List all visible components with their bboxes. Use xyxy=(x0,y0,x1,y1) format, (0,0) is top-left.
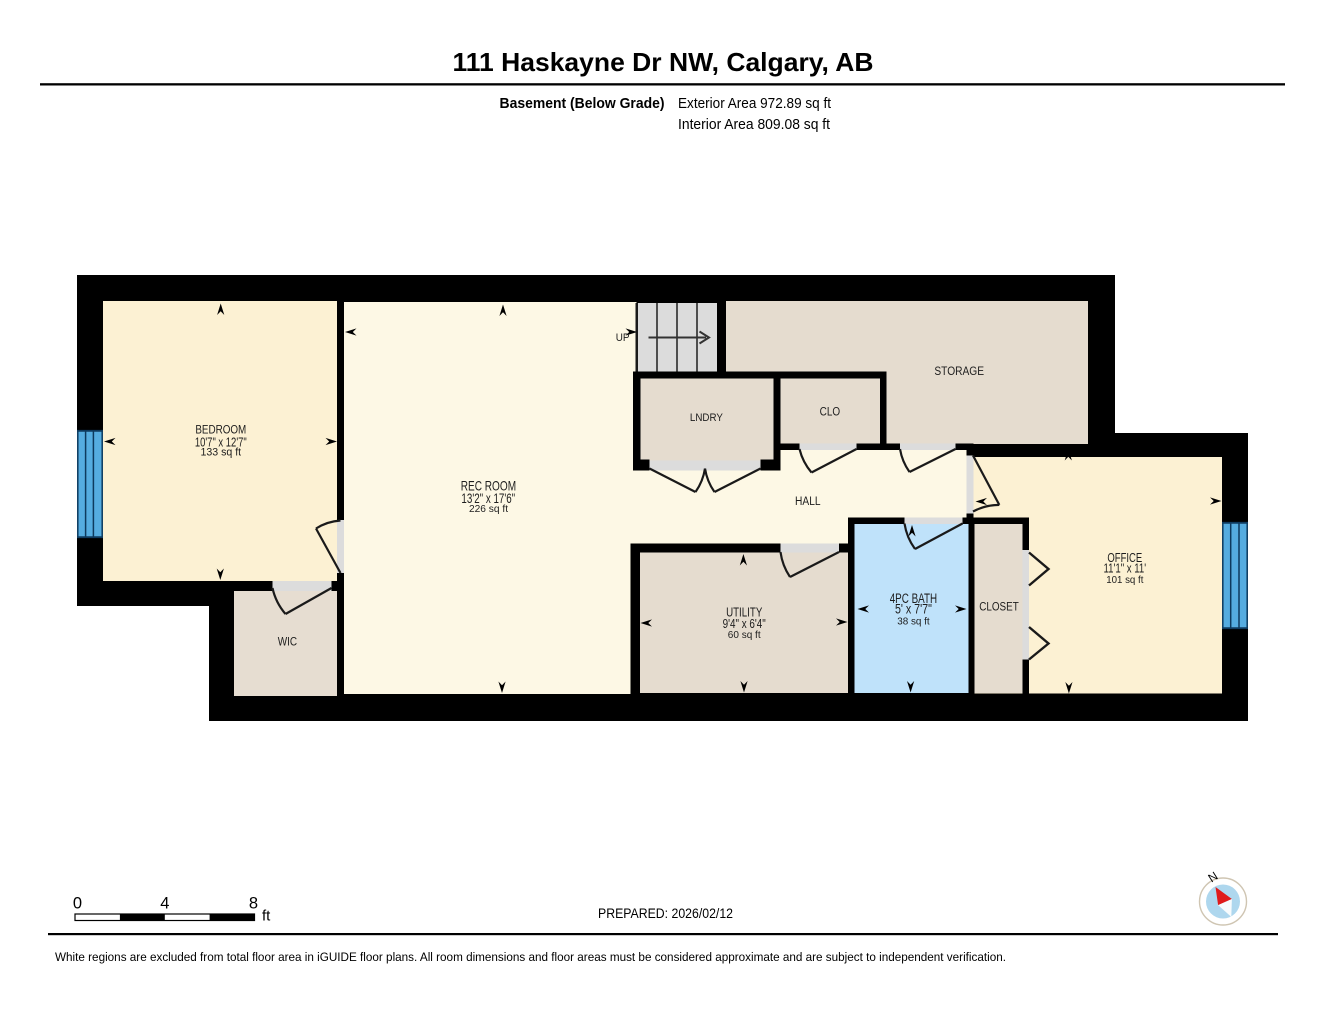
svg-text:STORAGE: STORAGE xyxy=(934,365,984,378)
svg-text:CLOSET: CLOSET xyxy=(979,601,1019,614)
svg-text:60 sq ft: 60 sq ft xyxy=(728,630,761,641)
svg-text:UP: UP xyxy=(616,333,630,345)
svg-text:WIC: WIC xyxy=(278,636,297,649)
svg-text:LNDRY: LNDRY xyxy=(690,413,723,425)
svg-text:ft: ft xyxy=(262,908,271,925)
svg-text:White regions are excluded fro: White regions are excluded from total fl… xyxy=(55,950,1006,964)
svg-text:PREPARED: 2026/02/12: PREPARED: 2026/02/12 xyxy=(598,906,733,921)
svg-text:8: 8 xyxy=(249,895,258,913)
svg-text:BEDROOM: BEDROOM xyxy=(195,424,246,437)
svg-text:HALL: HALL xyxy=(795,495,821,508)
svg-text:101 sq ft: 101 sq ft xyxy=(1106,575,1143,586)
svg-text:5' x 7'7": 5' x 7'7" xyxy=(895,601,932,617)
svg-text:0: 0 xyxy=(73,895,82,913)
svg-text:Exterior Area 972.89 sq ft: Exterior Area 972.89 sq ft xyxy=(678,96,831,112)
svg-text:Basement (Below Grade): Basement (Below Grade) xyxy=(500,95,665,112)
svg-text:38 sq ft: 38 sq ft xyxy=(897,617,930,628)
svg-text:133 sq ft: 133 sq ft xyxy=(200,446,241,458)
svg-text:111 Haskayne Dr NW, Calgary, A: 111 Haskayne Dr NW, Calgary, AB xyxy=(453,47,874,77)
svg-text:Interior Area 809.08 sq ft: Interior Area 809.08 sq ft xyxy=(678,117,830,133)
svg-text:CLO: CLO xyxy=(820,406,841,419)
svg-text:4: 4 xyxy=(160,895,169,913)
svg-text:11'1" x 11': 11'1" x 11' xyxy=(1104,562,1147,575)
svg-text:226 sq ft: 226 sq ft xyxy=(469,504,508,515)
